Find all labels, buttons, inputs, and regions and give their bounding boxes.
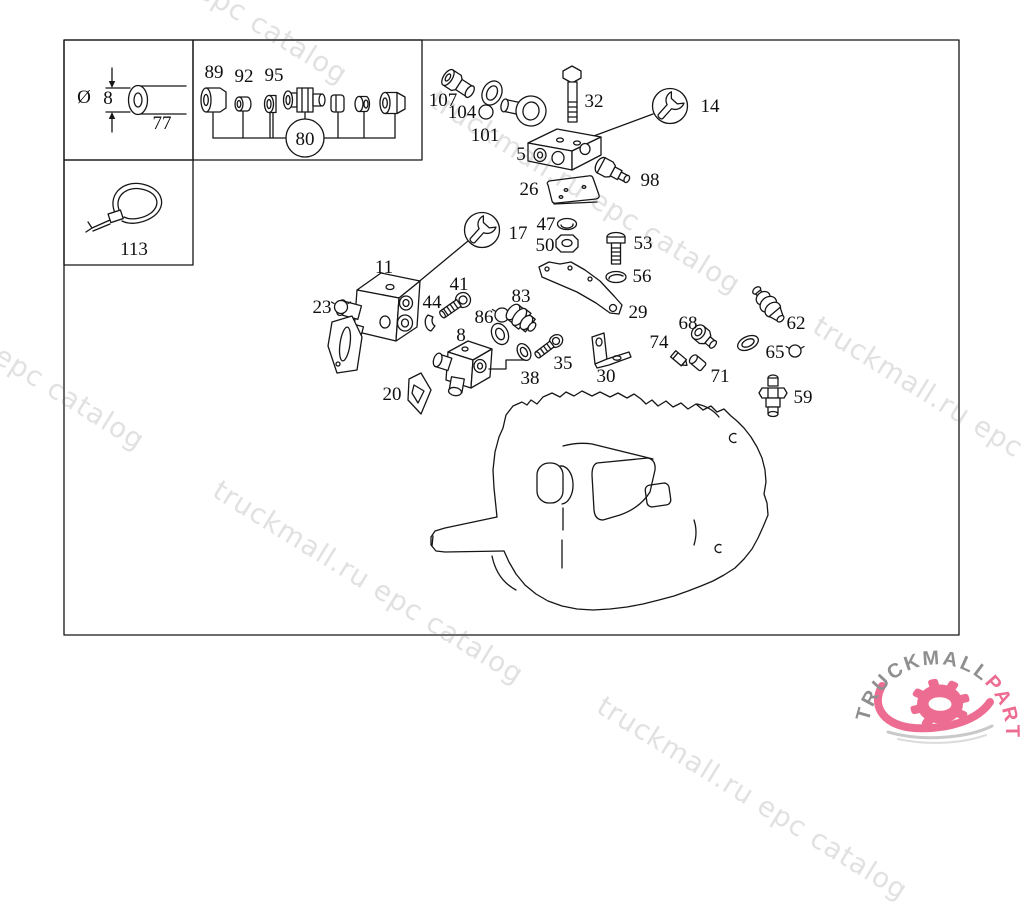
part-label-32: 32 (585, 91, 604, 112)
part-label-23: 23 (313, 297, 332, 318)
part-29-bracket (539, 262, 622, 314)
part-label-14: 14 (701, 96, 721, 117)
part-label-41: 41 (450, 274, 469, 295)
part-label-53: 53 (634, 233, 653, 254)
part-label-83: 83 (512, 286, 531, 307)
part-label-30: 30 (597, 366, 616, 387)
part-label-113: 113 (120, 239, 148, 260)
part-77-tube-dimension (106, 68, 186, 132)
part-113-cable-tie (86, 183, 162, 232)
part-32-bolt (563, 66, 581, 122)
part-98-fitting (593, 155, 633, 187)
part-label-71: 71 (711, 366, 730, 387)
part-label-62: 62 (787, 313, 806, 334)
part-label-50: 50 (536, 235, 555, 256)
part-label-8: 8 (456, 325, 466, 346)
part-71-roller (688, 353, 707, 371)
part-label-101: 101 (471, 125, 500, 146)
part-92-sleeve (235, 97, 251, 111)
part-label-74: 74 (650, 332, 670, 353)
part-label-77: 77 (153, 113, 172, 134)
part-label-80: 80 (296, 129, 315, 150)
part-label-98: 98 (641, 170, 660, 191)
part-50-nut (556, 235, 578, 252)
part-label-29: 29 (629, 302, 648, 323)
part-label-38: 38 (521, 368, 540, 389)
part-label-dia: Ø (77, 87, 91, 108)
part-56-clip (606, 272, 626, 283)
part-104-seal-ring (478, 78, 506, 119)
part-label-20: 20 (383, 384, 402, 405)
part-label-17: 17 (509, 223, 528, 244)
part-20-gasket (408, 373, 431, 414)
part-8-valve (432, 341, 526, 397)
part-26-plate (547, 176, 599, 204)
part-label-44: 44 (423, 292, 443, 313)
part-101-banjo-fitting (498, 90, 549, 129)
part-62-sensor (748, 282, 789, 326)
gearbox-outline (431, 391, 768, 610)
brand-logo: TRUCKMALLPARTS (852, 640, 1024, 750)
outer-border (64, 40, 959, 635)
part-label-5: 5 (516, 144, 526, 165)
part-label-35: 35 (554, 353, 573, 374)
parts-diagram: Ø877113899295801071041015321498261747505… (0, 0, 1024, 750)
part-label-104: 104 (448, 102, 477, 123)
part-47-spring-washer (558, 219, 577, 230)
part-89-union-nut (201, 88, 226, 112)
part-5-valve-block (528, 129, 601, 170)
part-30-angle-bracket (592, 333, 631, 368)
part-label-56: 56 (633, 266, 652, 287)
part-label-68: 68 (679, 313, 698, 334)
part-label-92: 92 (235, 66, 254, 87)
part-label-86: 86 (475, 307, 494, 328)
part-label-95: 95 (265, 65, 284, 86)
part-label-59: 59 (794, 387, 813, 408)
part-59-pressure-switch (759, 375, 787, 417)
part-label-47: 47 (537, 214, 556, 235)
part-95-ring (265, 96, 277, 113)
part-80-union-assembly (284, 88, 326, 112)
part-small-fitting (355, 97, 370, 112)
part-cap (331, 95, 344, 112)
part-label-11: 11 (375, 257, 393, 278)
part-44-clip (425, 315, 435, 331)
part-74-pin (671, 351, 690, 369)
part-label-dim8: 8 (103, 88, 113, 109)
part-label-65: 65 (766, 342, 785, 363)
part-label-89: 89 (205, 62, 224, 83)
part-53-bolt (607, 233, 625, 265)
part-label-26: 26 (520, 179, 539, 200)
part-hex-nut (380, 93, 405, 114)
